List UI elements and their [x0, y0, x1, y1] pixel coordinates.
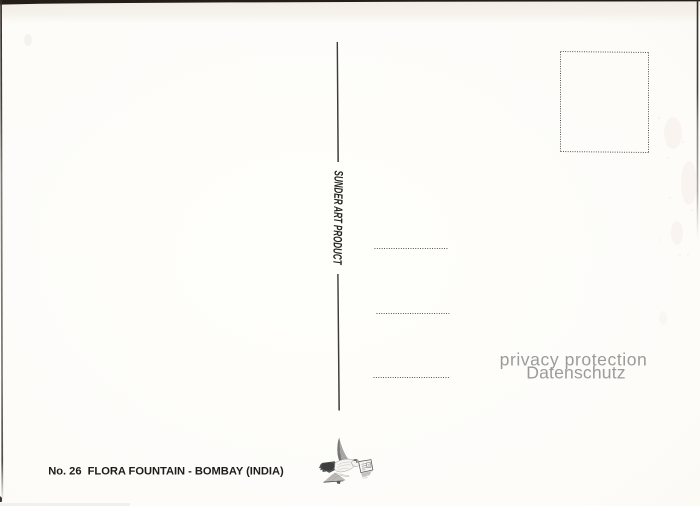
svg-text:No. 26 FLORA FOUNTAIN - BOMBA: No. 26 FLORA FOUNTAIN - BOMBAY (INDIA): [48, 465, 284, 477]
svg-text:SUNDER ART PRODUCT: SUNDER ART PRODUCT: [330, 170, 345, 265]
svg-text:Datenschutz: Datenschutz: [526, 362, 625, 382]
